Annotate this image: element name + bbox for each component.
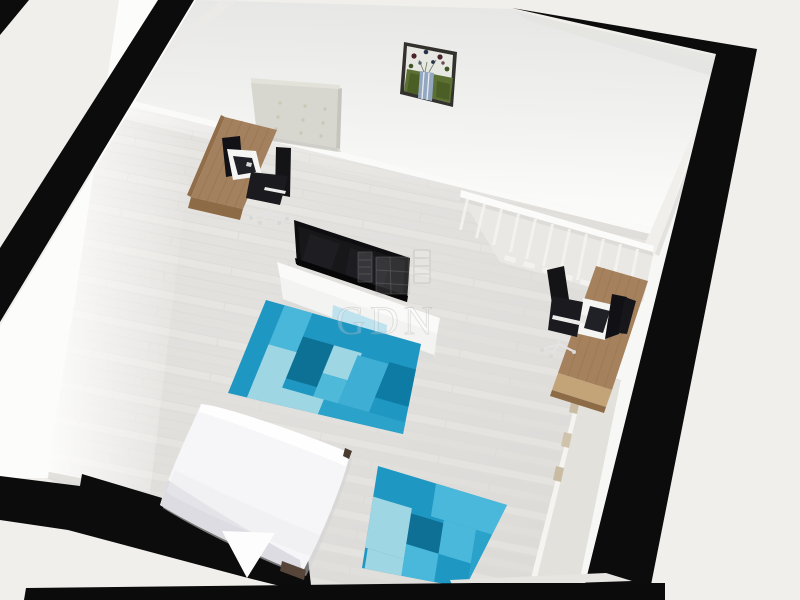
svg-text:GDN: GDN (336, 298, 438, 343)
